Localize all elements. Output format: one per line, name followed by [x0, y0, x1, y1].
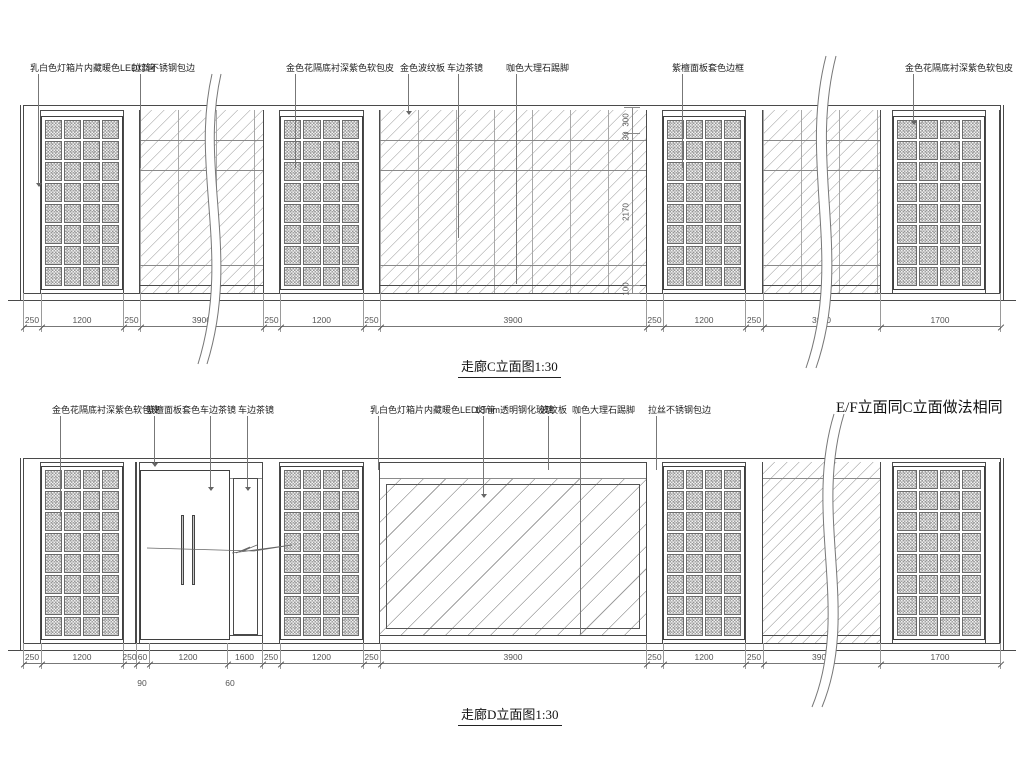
- lattice-motif-cell: [303, 533, 320, 552]
- lattice-motif-cell: [962, 267, 982, 286]
- lattice-motif-cell: [686, 512, 703, 531]
- lattice-motif-cell: [940, 162, 960, 181]
- lattice-motif-cell: [919, 470, 939, 489]
- material-label: 咖色大理石踢脚: [506, 63, 569, 73]
- lattice-motif-cell: [705, 246, 722, 265]
- lattice-motif-cell: [323, 554, 340, 573]
- lattice-motif-cell: [897, 246, 917, 265]
- lattice-motif-cell: [686, 533, 703, 552]
- wall-edge: [1000, 105, 1001, 300]
- lattice-motif-cell: [940, 533, 960, 552]
- lattice-motif-cell: [919, 617, 939, 636]
- lattice-motif-cell: [667, 470, 684, 489]
- lattice-motif-cell: [724, 470, 741, 489]
- dimension-value: 3900: [192, 315, 211, 325]
- lattice-motif-cell: [686, 596, 703, 615]
- material-label: 紫檀面板套色边框: [672, 63, 744, 73]
- dimension-value: 1200: [179, 652, 198, 662]
- lattice-motif-cell: [102, 554, 119, 573]
- lattice-motif-cell: [45, 246, 62, 265]
- lattice-motif-cell: [724, 141, 741, 160]
- lattice-motif-cell: [83, 554, 100, 573]
- lattice-motif-cell: [686, 554, 703, 573]
- lattice-motif-cell: [342, 267, 359, 286]
- lattice-motif-cell: [724, 491, 741, 510]
- lattice-motif-cell: [303, 183, 320, 202]
- lattice-motif-cell: [686, 141, 703, 160]
- vertical-dim-value: 100: [622, 282, 631, 295]
- dimension-value: 1700: [931, 315, 950, 325]
- lattice-motif-cell: [724, 204, 741, 223]
- lattice-motif-cell: [284, 533, 301, 552]
- lattice-motif-cell: [102, 596, 119, 615]
- dimension-tick: [263, 293, 264, 332]
- lattice-motif-cell: [705, 470, 722, 489]
- dimension-tick: [663, 643, 664, 669]
- lattice-motif-cell: [724, 533, 741, 552]
- drawing-title-c: 走廊C立面图1:30: [458, 356, 561, 378]
- lattice-motif-cell: [45, 267, 62, 286]
- lattice-motif-cell: [323, 162, 340, 181]
- lattice-motif-cell: [64, 162, 81, 181]
- lattice-motif-cell: [342, 470, 359, 489]
- lattice-motif-cell: [724, 617, 741, 636]
- lattice-motif-cell: [64, 554, 81, 573]
- lattice-motif-cell: [919, 554, 939, 573]
- lattice-motif-cell: [64, 246, 81, 265]
- lattice-motif-cell: [342, 120, 359, 139]
- lattice-motif-cell: [342, 204, 359, 223]
- lattice-motif-cell: [962, 575, 982, 594]
- lattice-motif-cell: [102, 617, 119, 636]
- lattice-motif-cell: [724, 246, 741, 265]
- lattice-motif-cell: [705, 162, 722, 181]
- lattice-motif-cell: [667, 617, 684, 636]
- dimension-value: 250: [747, 652, 761, 662]
- lattice-motif-cell: [64, 491, 81, 510]
- lattice-motif-cell: [284, 204, 301, 223]
- lattice-motif-cell: [724, 596, 741, 615]
- lattice-motif-cell: [919, 246, 939, 265]
- lattice-motif-cell: [64, 533, 81, 552]
- lattice-motif-cell: [940, 596, 960, 615]
- leader-line: [295, 74, 296, 168]
- steel-trim: [646, 110, 663, 293]
- lattice-motif-cell: [897, 554, 917, 573]
- lattice-motif-cell: [83, 491, 100, 510]
- steel-trim: [363, 110, 380, 293]
- lattice-motif-cell: [284, 596, 301, 615]
- lattice-motif-cell: [102, 267, 119, 286]
- lattice-motif-cell: [102, 533, 119, 552]
- lattice-motif-cell: [667, 554, 684, 573]
- lattice-motif-cell: [102, 183, 119, 202]
- lattice-panel: [41, 466, 123, 640]
- lattice-motif-cell: [897, 596, 917, 615]
- lattice-motif-cell: [919, 512, 939, 531]
- dimension-value: 1600: [235, 652, 254, 662]
- lattice-motif-cell: [705, 225, 722, 244]
- lattice-motif-cell: [342, 554, 359, 573]
- lattice-motif-cell: [323, 225, 340, 244]
- dimension-value: 60: [138, 652, 147, 662]
- lattice-motif-cell: [64, 204, 81, 223]
- lattice-panel: [663, 466, 745, 640]
- dimension-tick: [123, 293, 124, 332]
- dimension-tick: [880, 293, 881, 332]
- lattice-motif-cell: [686, 246, 703, 265]
- lattice-motif-cell: [962, 491, 982, 510]
- lattice-motif-cell: [303, 246, 320, 265]
- lattice-motif-cell: [919, 267, 939, 286]
- lattice-motif-cell: [323, 596, 340, 615]
- lattice-motif-cell: [342, 512, 359, 531]
- lattice-motif-cell: [303, 267, 320, 286]
- steel-trim: [985, 462, 1000, 643]
- vertical-dim-value: 30: [622, 132, 631, 141]
- lattice-motif-cell: [940, 183, 960, 202]
- leader-line: [516, 74, 517, 284]
- lattice-motif-cell: [705, 267, 722, 286]
- lattice-motif-cell: [724, 225, 741, 244]
- leader-line: [60, 416, 61, 516]
- lattice-panel: [280, 466, 363, 640]
- wall-edge: [1003, 458, 1004, 650]
- dimension-tick: [380, 643, 381, 669]
- dimension-value: 250: [364, 315, 378, 325]
- lattice-motif-cell: [919, 596, 939, 615]
- lattice-motif-cell: [64, 617, 81, 636]
- lattice-motif-cell: [940, 575, 960, 594]
- lattice-motif-cell: [303, 141, 320, 160]
- dimension-value: 3900: [504, 652, 523, 662]
- lattice-motif-cell: [897, 204, 917, 223]
- lattice-motif-cell: [962, 617, 982, 636]
- lattice-motif-cell: [897, 617, 917, 636]
- dimension-value: 250: [25, 652, 39, 662]
- lattice-motif-cell: [919, 533, 939, 552]
- steel-trim: [985, 110, 1000, 293]
- lattice-motif-cell: [45, 554, 62, 573]
- lattice-motif-cell: [705, 491, 722, 510]
- dimension-tick: [880, 643, 881, 669]
- material-label: 金色花隔底衬深紫色软包皮: [905, 63, 1013, 73]
- lattice-motif-cell: [705, 533, 722, 552]
- lattice-motif-cell: [919, 183, 939, 202]
- dimension-tick: [41, 643, 42, 669]
- lattice-motif-cell: [102, 470, 119, 489]
- lattice-motif-cell: [667, 575, 684, 594]
- lattice-motif-cell: [667, 246, 684, 265]
- dimension-tick: [149, 643, 150, 669]
- lattice-motif-cell: [919, 491, 939, 510]
- dimension-tick: [646, 293, 647, 332]
- lattice-motif-cell: [940, 204, 960, 223]
- lattice-motif-cell: [686, 491, 703, 510]
- leader-line: [913, 74, 914, 124]
- lattice-motif-cell: [342, 491, 359, 510]
- lattice-motif-cell: [897, 470, 917, 489]
- lattice-motif-cell: [919, 120, 939, 139]
- lattice-panel: [893, 466, 985, 640]
- lattice-motif-cell: [962, 141, 982, 160]
- mirror-row-line: [140, 265, 880, 266]
- lattice-motif-cell: [962, 246, 982, 265]
- lattice-motif-cell: [962, 533, 982, 552]
- lattice-motif-cell: [342, 575, 359, 594]
- dimension-tick: [663, 293, 664, 332]
- lattice-motif-cell: [102, 246, 119, 265]
- lattice-motif-cell: [724, 512, 741, 531]
- dimension-tick: [363, 293, 364, 332]
- lattice-motif-cell: [284, 162, 301, 181]
- lattice-motif-cell: [940, 141, 960, 160]
- lattice-motif-cell: [83, 120, 100, 139]
- dimension-value: 250: [124, 315, 138, 325]
- lattice-motif-cell: [45, 225, 62, 244]
- lattice-motif-cell: [102, 162, 119, 181]
- lattice-motif-cell: [667, 533, 684, 552]
- lattice-motif-cell: [323, 491, 340, 510]
- lattice-motif-cell: [686, 204, 703, 223]
- lattice-motif-cell: [102, 204, 119, 223]
- lattice-motif-cell: [897, 141, 917, 160]
- vertical-dim-line: [632, 107, 633, 293]
- lattice-motif-cell: [303, 491, 320, 510]
- material-label: 波纹板: [540, 405, 567, 415]
- lattice-motif-cell: [919, 162, 939, 181]
- dimension-line: [23, 663, 1000, 664]
- dimension-value: 250: [747, 315, 761, 325]
- vertical-dim-value: 2170: [622, 203, 631, 221]
- dimension-value: 1200: [695, 315, 714, 325]
- wall-top-line: [23, 458, 1000, 459]
- lattice-motif-cell: [342, 533, 359, 552]
- lattice-motif-cell: [705, 120, 722, 139]
- lattice-motif-cell: [64, 267, 81, 286]
- lattice-motif-cell: [83, 533, 100, 552]
- lattice-motif-cell: [940, 491, 960, 510]
- dimension-tick: [262, 643, 263, 669]
- lattice-motif-cell: [667, 204, 684, 223]
- lattice-motif-cell: [323, 533, 340, 552]
- dimension-tick: [23, 293, 24, 332]
- lattice-motif-cell: [284, 491, 301, 510]
- lattice-motif-cell: [102, 491, 119, 510]
- steel-trim: [880, 462, 893, 643]
- lightbox-band-line: [41, 140, 1000, 141]
- material-label: 金色花隔底衬深紫色软包皮: [52, 405, 160, 415]
- lattice-motif-cell: [323, 267, 340, 286]
- lattice-motif-cell: [705, 617, 722, 636]
- dimension-tick: [280, 293, 281, 332]
- lattice-motif-cell: [705, 512, 722, 531]
- lattice-motif-cell: [705, 554, 722, 573]
- dimension-tick: [763, 643, 764, 669]
- leader-line: [378, 416, 379, 470]
- lattice-motif-cell: [667, 267, 684, 286]
- lattice-motif-cell: [64, 470, 81, 489]
- lattice-motif-cell: [940, 470, 960, 489]
- lattice-motif-cell: [83, 204, 100, 223]
- material-label: 车边茶镜: [200, 405, 236, 415]
- sub-dim-value: 60: [225, 678, 234, 688]
- ef-elevation-note: E/F立面同C立面做法相同: [836, 396, 1003, 417]
- lattice-motif-cell: [342, 162, 359, 181]
- lattice-motif-cell: [64, 120, 81, 139]
- dimension-value: 3900: [812, 652, 831, 662]
- steel-trim: [646, 462, 663, 643]
- steel-trim: [363, 462, 380, 643]
- lattice-motif-cell: [303, 470, 320, 489]
- steel-trim: [123, 462, 136, 643]
- lattice-motif-cell: [102, 141, 119, 160]
- wall-edge: [1000, 458, 1001, 650]
- lattice-motif-cell: [284, 225, 301, 244]
- leader-line: [580, 416, 581, 634]
- lattice-motif-cell: [962, 162, 982, 181]
- leader-line: [210, 416, 211, 490]
- dimension-tick: [763, 293, 764, 332]
- material-label: 拉丝不锈钢包边: [132, 63, 195, 73]
- lattice-motif-cell: [323, 183, 340, 202]
- lattice-motif-cell: [897, 491, 917, 510]
- lattice-motif-cell: [83, 162, 100, 181]
- leader-line: [38, 74, 39, 186]
- lattice-motif-cell: [940, 120, 960, 139]
- lattice-motif-cell: [705, 183, 722, 202]
- lattice-motif-cell: [83, 267, 100, 286]
- lattice-motif-cell: [724, 183, 741, 202]
- lattice-motif-cell: [724, 575, 741, 594]
- material-label: 拉丝不锈钢包边: [648, 405, 711, 415]
- material-label: 车边茶镜: [447, 63, 483, 73]
- leader-line: [408, 74, 409, 114]
- dimension-value: 1200: [73, 315, 92, 325]
- steel-trim: [745, 462, 763, 643]
- lattice-motif-cell: [940, 554, 960, 573]
- lattice-motif-cell: [686, 183, 703, 202]
- dimension-value: 250: [647, 315, 661, 325]
- dimension-value: 250: [264, 652, 278, 662]
- lattice-motif-cell: [323, 617, 340, 636]
- lattice-motif-cell: [897, 512, 917, 531]
- material-label: 车边茶镜: [238, 405, 274, 415]
- dimension-tick: [745, 643, 746, 669]
- steel-trim: [123, 110, 140, 293]
- dimension-tick: [280, 643, 281, 669]
- dimension-value: 1200: [312, 652, 331, 662]
- leader-line: [656, 416, 657, 470]
- lattice-motif-cell: [83, 470, 100, 489]
- sub-dim-value: 90: [137, 678, 146, 688]
- lattice-motif-cell: [919, 575, 939, 594]
- lattice-motif-cell: [303, 225, 320, 244]
- lattice-motif-cell: [342, 183, 359, 202]
- lattice-motif-cell: [342, 596, 359, 615]
- dimension-value: 250: [364, 652, 378, 662]
- lattice-motif-cell: [64, 596, 81, 615]
- lattice-motif-cell: [284, 267, 301, 286]
- lattice-motif-cell: [686, 120, 703, 139]
- lattice-panel: [41, 116, 123, 290]
- lattice-motif-cell: [705, 575, 722, 594]
- steel-trim: [263, 110, 280, 293]
- lattice-motif-cell: [940, 267, 960, 286]
- wall-top-line: [23, 105, 1000, 106]
- mirror-row-line: [140, 170, 880, 171]
- lattice-motif-cell: [303, 204, 320, 223]
- dimension-value: 1700: [931, 652, 950, 662]
- lattice-motif-cell: [323, 246, 340, 265]
- lattice-motif-cell: [919, 204, 939, 223]
- lattice-motif-cell: [686, 575, 703, 594]
- lattice-motif-cell: [45, 617, 62, 636]
- dimension-value: 1200: [312, 315, 331, 325]
- wall-edge: [1003, 105, 1004, 300]
- lattice-motif-cell: [284, 141, 301, 160]
- dimension-value: 250: [122, 652, 136, 662]
- lattice-motif-cell: [962, 120, 982, 139]
- dimension-tick: [1000, 643, 1001, 669]
- lattice-motif-cell: [897, 183, 917, 202]
- steel-trim: [23, 462, 41, 643]
- lattice-motif-cell: [45, 183, 62, 202]
- vertical-dim-value: 300: [622, 113, 631, 126]
- dimension-line: [23, 326, 1000, 327]
- lattice-motif-cell: [64, 225, 81, 244]
- lattice-motif-cell: [897, 225, 917, 244]
- lattice-motif-cell: [686, 470, 703, 489]
- lattice-motif-cell: [686, 267, 703, 286]
- wall-edge: [20, 458, 21, 650]
- wall-edge: [20, 105, 21, 300]
- lattice-motif-cell: [83, 617, 100, 636]
- lattice-motif-cell: [940, 512, 960, 531]
- lattice-motif-cell: [962, 512, 982, 531]
- lattice-panel: [280, 116, 363, 290]
- dimension-row-c: 2501200250390025012002503900250120025039…: [0, 293, 1024, 335]
- lattice-motif-cell: [962, 204, 982, 223]
- steel-trim: [262, 462, 280, 643]
- lattice-motif-cell: [962, 470, 982, 489]
- dimension-value: 250: [647, 652, 661, 662]
- lattice-motif-cell: [897, 267, 917, 286]
- lattice-motif-cell: [284, 183, 301, 202]
- lattice-motif-cell: [284, 554, 301, 573]
- lattice-motif-cell: [667, 596, 684, 615]
- dimension-tick: [140, 293, 141, 332]
- lattice-motif-cell: [45, 575, 62, 594]
- lattice-motif-cell: [45, 162, 62, 181]
- lattice-motif-cell: [284, 575, 301, 594]
- dimension-tick: [23, 643, 24, 669]
- lattice-motif-cell: [83, 225, 100, 244]
- lattice-panel: [663, 116, 745, 290]
- dimension-value: 1200: [73, 652, 92, 662]
- lattice-motif-cell: [303, 575, 320, 594]
- dimension-tick: [41, 293, 42, 332]
- dimension-row-d: 2501200250601200160025012002503900250120…: [0, 643, 1024, 672]
- lattice-motif-cell: [323, 512, 340, 531]
- dimension-value: 3900: [812, 315, 831, 325]
- lattice-motif-cell: [323, 120, 340, 139]
- glass-inner-frame: [386, 484, 640, 629]
- lattice-motif-cell: [686, 617, 703, 636]
- lattice-motif-cell: [83, 183, 100, 202]
- drawing-title-d: 走廊D立面图1:30: [458, 704, 562, 726]
- lattice-motif-cell: [724, 267, 741, 286]
